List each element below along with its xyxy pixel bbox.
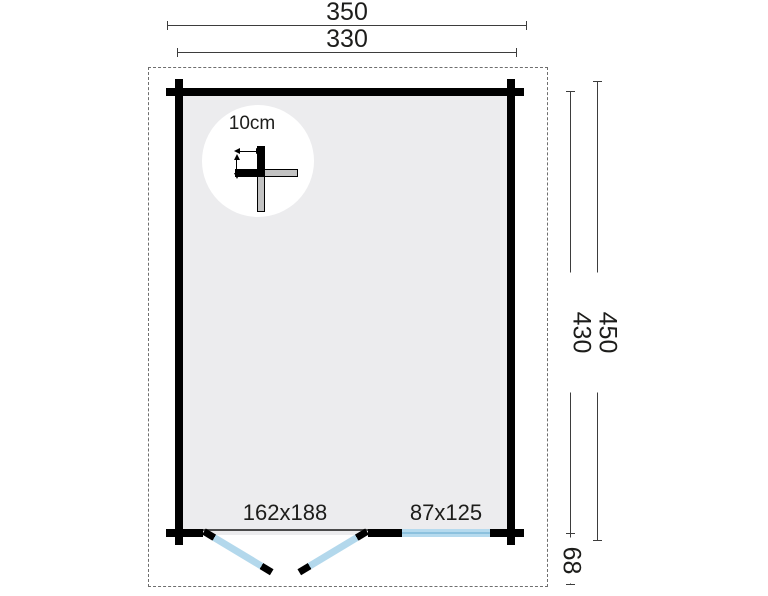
wall-detail-log-end-bottom bbox=[257, 176, 265, 212]
door-threshold-line bbox=[203, 529, 368, 531]
window bbox=[402, 529, 490, 537]
dim-tick bbox=[516, 48, 517, 57]
wall-bottom-segment-middle bbox=[368, 529, 402, 537]
dim-tick bbox=[566, 91, 575, 92]
window-pane-line bbox=[402, 532, 490, 534]
dim-tick bbox=[593, 81, 602, 82]
floorplan-canvas: 10cm 350 330 430 450 68 162x188 87x125 bbox=[0, 0, 768, 596]
window-size-label: 87x125 bbox=[386, 502, 506, 524]
dim-label-overall-depth: 450 bbox=[595, 273, 620, 393]
arrow-head-up-icon bbox=[234, 154, 240, 160]
wall-left bbox=[175, 79, 183, 545]
dim-label-overall-width: 350 bbox=[287, 0, 407, 25]
dim-tick bbox=[526, 21, 527, 30]
dim-label-front-clearance: 68 bbox=[559, 538, 584, 584]
thickness-arrow-horizontal-icon bbox=[239, 151, 257, 152]
dim-label-wall-depth: 430 bbox=[569, 273, 594, 393]
wall-bottom-segment-left bbox=[166, 529, 203, 537]
dim-label-wall-width: 330 bbox=[287, 27, 407, 52]
wall-bottom-segment-right bbox=[490, 529, 524, 537]
dim-tick bbox=[177, 48, 178, 57]
wall-detail-log-end-right bbox=[264, 169, 298, 177]
dim-tick bbox=[167, 21, 168, 30]
arrow-head-right-icon bbox=[256, 148, 262, 154]
dim-tick bbox=[593, 540, 602, 541]
door-size-label: 162x188 bbox=[215, 502, 355, 524]
wall-thickness-label: 10cm bbox=[212, 114, 292, 133]
dim-line-wall-width bbox=[177, 52, 517, 53]
wall-right bbox=[507, 79, 515, 545]
wall-top bbox=[166, 88, 524, 96]
arrow-head-down-icon bbox=[234, 173, 240, 179]
dim-tick bbox=[566, 584, 575, 585]
